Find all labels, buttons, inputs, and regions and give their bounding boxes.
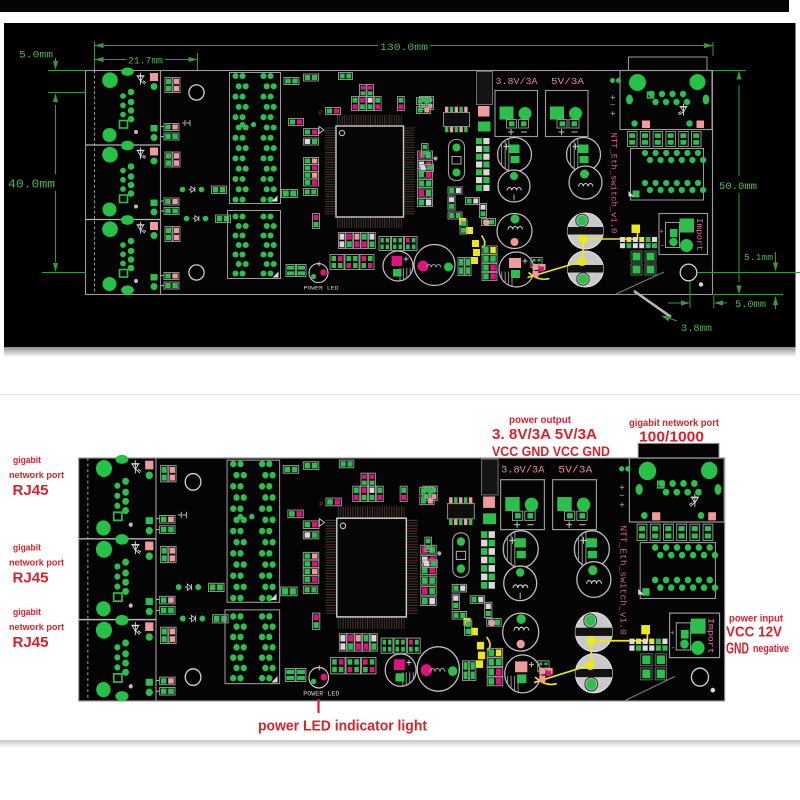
- svg-text:RJ45: RJ45: [13, 482, 49, 499]
- svg-text:3. 8V/3A 5V/3A: 3. 8V/3A 5V/3A: [492, 426, 597, 443]
- svg-text:gigabit: gigabit: [13, 607, 42, 618]
- svg-text:power LED indicator light: power LED indicator light: [258, 719, 427, 735]
- svg-text:network port: network port: [9, 470, 65, 481]
- svg-text:gigabit network port: gigabit network port: [629, 417, 719, 429]
- svg-text:VCC 12V: VCC 12V: [726, 624, 782, 641]
- svg-text:network port: network port: [9, 558, 65, 569]
- svg-text:21.7mm: 21.7mm: [128, 57, 163, 68]
- svg-text:3.8mm: 3.8mm: [681, 324, 712, 335]
- svg-text:network port: network port: [9, 622, 65, 633]
- svg-text:130.0mm: 130.0mm: [380, 43, 428, 54]
- svg-text:50.0mm: 50.0mm: [719, 181, 757, 193]
- svg-text:5.1mm: 5.1mm: [744, 252, 773, 263]
- svg-text:VCC GND VCC GND: VCC GND VCC GND: [492, 444, 610, 459]
- svg-text:5.0mm: 5.0mm: [19, 51, 53, 62]
- svg-text:gigabit: gigabit: [13, 543, 42, 554]
- svg-text:gigabit: gigabit: [13, 455, 42, 466]
- svg-text:power output: power output: [509, 414, 571, 426]
- svg-text:negative: negative: [753, 643, 789, 655]
- svg-text:RJ45: RJ45: [13, 634, 49, 651]
- svg-text:GND: GND: [726, 641, 749, 658]
- svg-text:5.0mm: 5.0mm: [735, 300, 766, 311]
- svg-text:100/1000: 100/1000: [639, 429, 704, 446]
- svg-text:40.0mm: 40.0mm: [8, 178, 55, 192]
- svg-text:RJ45: RJ45: [13, 570, 49, 587]
